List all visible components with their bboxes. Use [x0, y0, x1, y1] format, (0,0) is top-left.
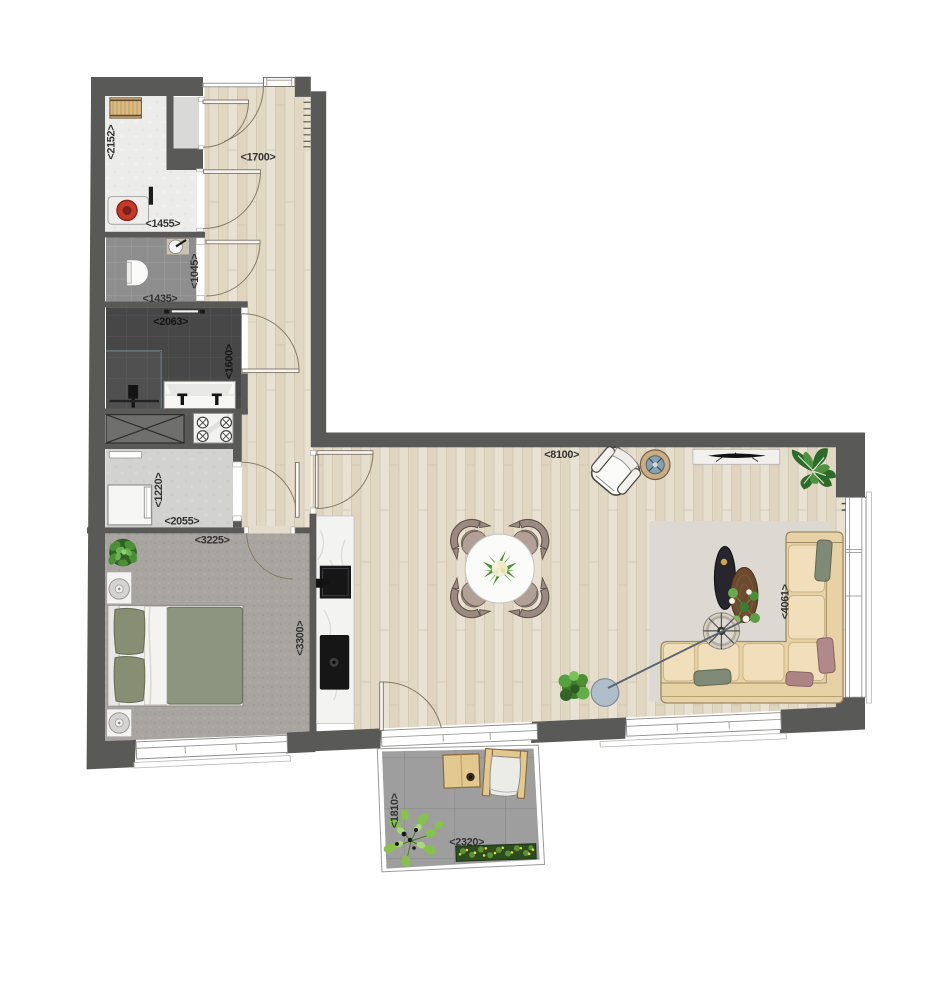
svg-text:<2320>: <2320>	[449, 837, 484, 849]
svg-text:<2055>: <2055>	[164, 515, 199, 527]
svg-text:<1810>: <1810>	[389, 793, 401, 828]
svg-text:<1455>: <1455>	[145, 218, 180, 230]
svg-text:<2152>: <2152>	[105, 125, 117, 160]
svg-text:<1045>: <1045>	[189, 254, 201, 289]
svg-text:<1435>: <1435>	[143, 293, 178, 305]
svg-text:<1220>: <1220>	[153, 473, 165, 508]
svg-text:<1700>: <1700>	[241, 152, 276, 164]
svg-text:<2063>: <2063>	[153, 316, 188, 328]
svg-text:<1600>: <1600>	[223, 344, 235, 379]
svg-text:<3225>: <3225>	[195, 535, 230, 547]
svg-text:<4061>: <4061>	[779, 584, 791, 619]
svg-text:<3300>: <3300>	[295, 621, 307, 656]
svg-text:<8100>: <8100>	[544, 449, 579, 461]
